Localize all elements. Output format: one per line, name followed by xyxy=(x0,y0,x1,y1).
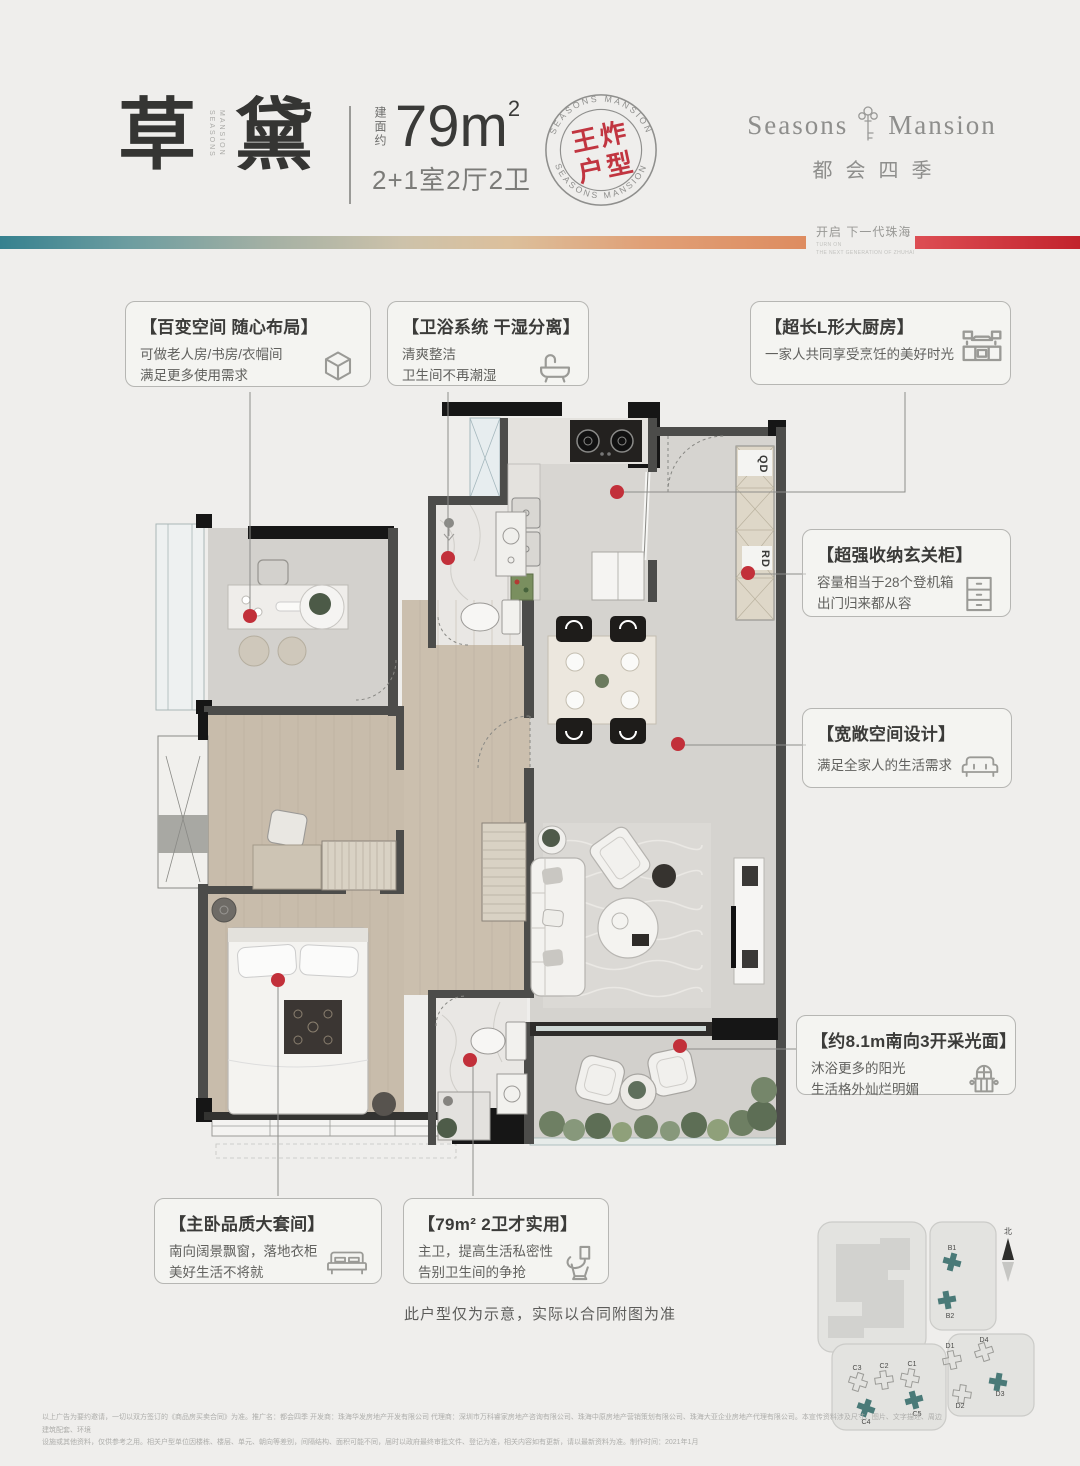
site-label-d2: D2 xyxy=(956,1403,965,1410)
poster-page: { "header": { "title_char1": "草", "title… xyxy=(0,0,1080,1466)
site-label-c2: C2 xyxy=(880,1363,889,1370)
svg-text:北: 北 xyxy=(1004,1227,1012,1236)
site-label-b1: B1 xyxy=(948,1245,957,1252)
logo-cn: 都会四季 xyxy=(742,154,1002,183)
unit-title-char2: 黛 xyxy=(235,96,313,174)
cube-icon xyxy=(320,348,356,384)
tagline: 开启 下一代珠海 TURN ON THE NEXT GENERATION OF … xyxy=(816,223,915,257)
brand-logo: Seasons Mansion 都会四季 xyxy=(742,104,1002,183)
header-divider xyxy=(349,106,351,204)
bed-icon xyxy=(326,1248,368,1278)
floorplan-note: 此户型仅为示意，实际以合同附图为准 xyxy=(0,1303,1080,1324)
bathtub-icon xyxy=(536,349,574,383)
king-stamp: SEASONS MANSION SEASONS MANSION 王炸 户型 xyxy=(543,92,659,208)
area-sup: 2 xyxy=(508,98,520,120)
site-label-d4: D4 xyxy=(980,1337,989,1344)
callout-master-suite: 【主卧品质大套间】 南向阔景飘窗，落地衣柜 美好生活不将就 xyxy=(154,1198,382,1284)
label-rd: RD xyxy=(759,550,771,568)
callout-foyer-cabinet: 【超强收纳玄关柜】 容量相当于28个登机箱 出门归来都从容 xyxy=(802,529,1011,617)
gradient-bar xyxy=(0,236,806,249)
toilet-icon xyxy=(564,1244,594,1282)
callout-two-baths: 【79m² 2卫才实用】 主卫，提高生活私密性 告别卫生间的争抢 xyxy=(403,1198,609,1284)
sofa-icon xyxy=(960,752,1000,780)
kitchen-icon xyxy=(962,328,1002,362)
unit-title: 草 SEASONS MANSION 黛 xyxy=(118,96,313,174)
area-value: 79m xyxy=(395,98,508,156)
callout-daylight: 【约8.1m南向3开采光面】 沐浴更多的阳光 生活格外灿烂明媚 xyxy=(796,1015,1016,1095)
callout-wet-dry: 【卫浴系统 干湿分离】 清爽整洁 卫生间不再潮湿 xyxy=(387,301,589,386)
bay-window-icon xyxy=(967,1062,1001,1098)
site-label-d1: D1 xyxy=(946,1343,955,1350)
layout-spec: 2+1室2厅2卫 xyxy=(372,160,531,197)
label-qd: QD xyxy=(757,455,769,474)
unit-title-side-text: SEASONS MANSION xyxy=(208,110,225,158)
legal-disclaimer: 以上广告为要约邀请，一切以双方签订的《商品房买卖合同》为准。推广名：都会四季 开… xyxy=(42,1412,942,1450)
north-arrow: 北 xyxy=(1002,1227,1014,1282)
unit-title-char1: 草 xyxy=(118,96,196,174)
red-bar xyxy=(915,236,1080,249)
cabinet-icon xyxy=(962,575,996,613)
area-block: 建面约 79m2 2+1室2厅2卫 xyxy=(372,98,531,197)
callout-kitchen: 【超长L形大厨房】 一家人共同享受烹饪的美好时光 xyxy=(750,301,1011,385)
callout-flex-space: 【百变空间 随心布局】 可做老人房/书房/衣帽间 满足更多使用需求 xyxy=(125,301,371,387)
area-prefix: 建面约 xyxy=(372,106,389,148)
site-plan: B1 B2 C1 C2 C3 C4 C5 D1 D2 D3 D4 北 xyxy=(818,1222,1034,1430)
logo-en-left: Seasons xyxy=(747,110,848,141)
key-icon xyxy=(855,104,881,146)
foyer-cabinet: QD RD xyxy=(736,446,774,620)
site-label-c1: C1 xyxy=(908,1361,917,1368)
site-label-c3: C3 xyxy=(853,1365,862,1372)
site-label-d3: D3 xyxy=(996,1391,1005,1398)
logo-en-right: Mansion xyxy=(888,110,997,141)
callout-spacious: 【宽敞空间设计】 满足全家人的生活需求 xyxy=(802,708,1012,788)
